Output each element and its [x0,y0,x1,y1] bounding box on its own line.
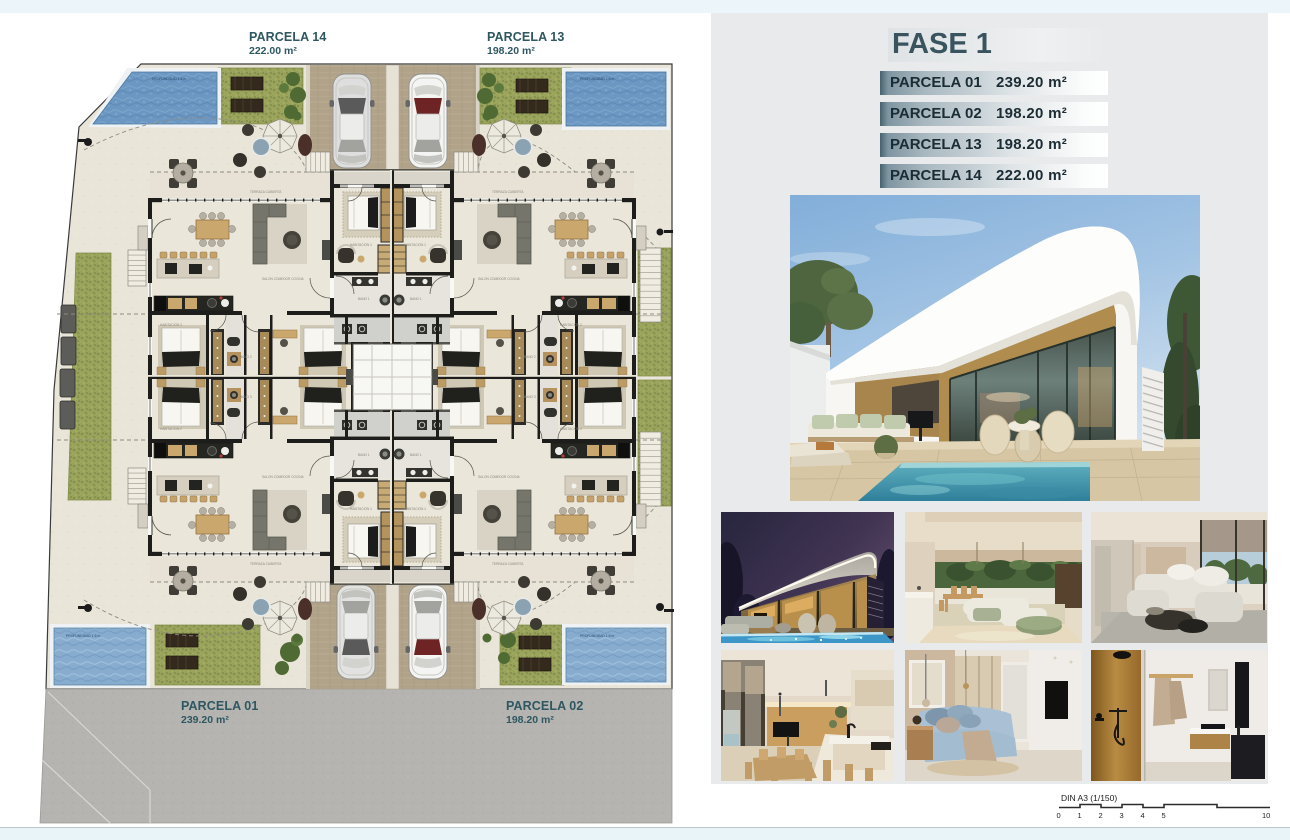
svg-text:PARCELA 02: PARCELA 02 [506,699,583,713]
svg-text:HABITACION 1: HABITACION 1 [350,507,372,511]
svg-text:BANO 1: BANO 1 [410,453,422,457]
svg-text:PARCELA 01: PARCELA 01 [181,699,258,713]
svg-text:BANO 1: BANO 1 [358,453,370,457]
svg-text:SALON COMEDOR COCINA: SALON COMEDOR COCINA [478,475,520,479]
svg-text:TERRAZA CUBIERTA: TERRAZA CUBIERTA [492,190,524,194]
svg-text:HABITACION 2: HABITACION 2 [160,427,182,431]
svg-text:SALON COMEDOR COCINA: SALON COMEDOR COCINA [478,277,520,281]
svg-text:239.20 m²: 239.20 m² [181,714,229,726]
svg-text:PARCELA 14: PARCELA 14 [249,30,326,44]
svg-text:198.20 m²: 198.20 m² [487,45,535,57]
svg-text:3: 3 [1120,811,1124,820]
svg-text:TERRAZA CUBIERTA: TERRAZA CUBIERTA [492,562,524,566]
svg-text:HABITACION 2: HABITACION 2 [560,323,582,327]
svg-text:4: 4 [1141,811,1145,820]
svg-text:SALON COMEDOR COCINA: SALON COMEDOR COCINA [262,475,304,479]
svg-text:PROFUNDIDAD 1.5 m: PROFUNDIDAD 1.5 m [580,634,614,638]
svg-text:TERRAZA CUBIERTA: TERRAZA CUBIERTA [250,190,282,194]
svg-text:5: 5 [1162,811,1166,820]
svg-text:10: 10 [1262,811,1270,820]
svg-text:198.20 m²: 198.20 m² [506,714,554,726]
svg-text:BANO 1: BANO 1 [358,297,370,301]
svg-text:HABITACION 1: HABITACION 1 [404,243,426,247]
svg-text:BANO 3: BANO 3 [524,395,536,399]
svg-text:PROFUNDIDAD 1.5 m: PROFUNDIDAD 1.5 m [152,77,186,81]
svg-text:HABITACION 1: HABITACION 1 [350,243,372,247]
svg-text:BANO 1: BANO 1 [410,297,422,301]
svg-text:1: 1 [1078,811,1082,820]
svg-text:PROFUNDIDAD 1.5 m: PROFUNDIDAD 1.5 m [66,634,100,638]
svg-text:0: 0 [1057,811,1061,820]
svg-text:HABITACION 2: HABITACION 2 [560,427,582,431]
svg-text:222.00 m²: 222.00 m² [249,45,297,57]
svg-text:PARCELA 13: PARCELA 13 [487,30,564,44]
svg-text:TERRAZA CUBIERTA: TERRAZA CUBIERTA [250,562,282,566]
svg-text:2: 2 [1099,811,1103,820]
svg-text:BANO 3: BANO 3 [240,395,252,399]
svg-text:BANO 2: BANO 2 [524,355,536,359]
svg-text:HABITACION 1: HABITACION 1 [404,507,426,511]
svg-text:PROFUNDIDAD 1.5 m: PROFUNDIDAD 1.5 m [580,77,614,81]
svg-text:BANO 2: BANO 2 [240,355,252,359]
svg-text:DIN A3 (1/150): DIN A3 (1/150) [1061,793,1117,803]
svg-text:HABITACION 2: HABITACION 2 [160,323,182,327]
svg-text:SALON COMEDOR COCINA: SALON COMEDOR COCINA [262,277,304,281]
